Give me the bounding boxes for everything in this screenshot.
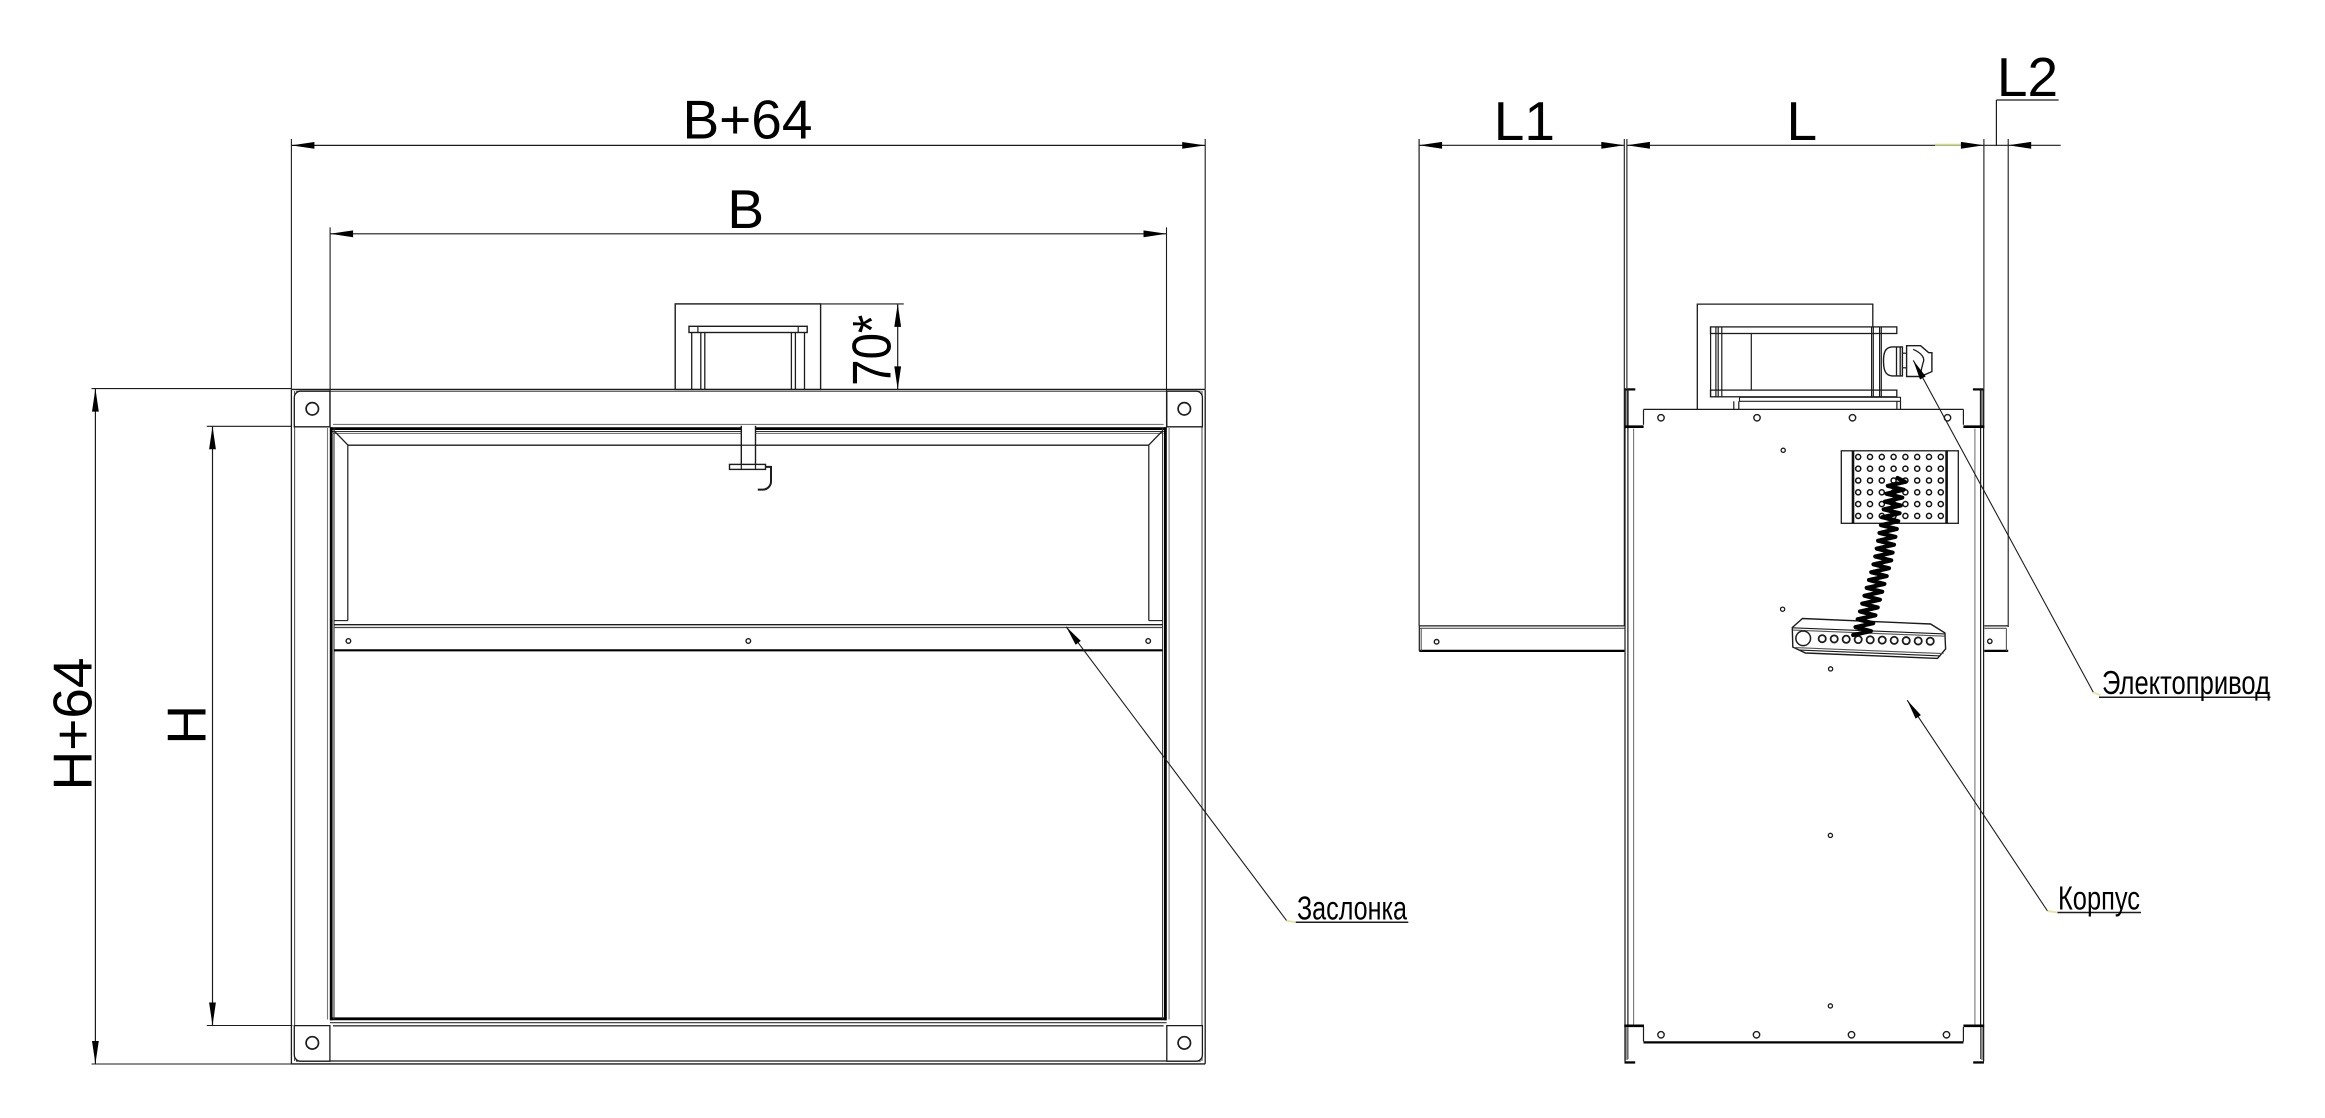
svg-text:70*: 70* [841, 315, 903, 386]
svg-text:H+64: H+64 [42, 657, 104, 790]
svg-text:L1: L1 [1494, 90, 1555, 152]
svg-text:H: H [156, 705, 218, 745]
svg-text:Электопривод: Электопривод [2102, 665, 2270, 702]
svg-text:B+64: B+64 [683, 89, 813, 151]
svg-text:Корпус: Корпус [2058, 881, 2140, 918]
svg-text:L2: L2 [1997, 46, 2058, 108]
svg-text:Заслонка: Заслонка [1297, 891, 1407, 928]
svg-text:L: L [1787, 90, 1818, 152]
svg-text:B: B [727, 178, 764, 240]
